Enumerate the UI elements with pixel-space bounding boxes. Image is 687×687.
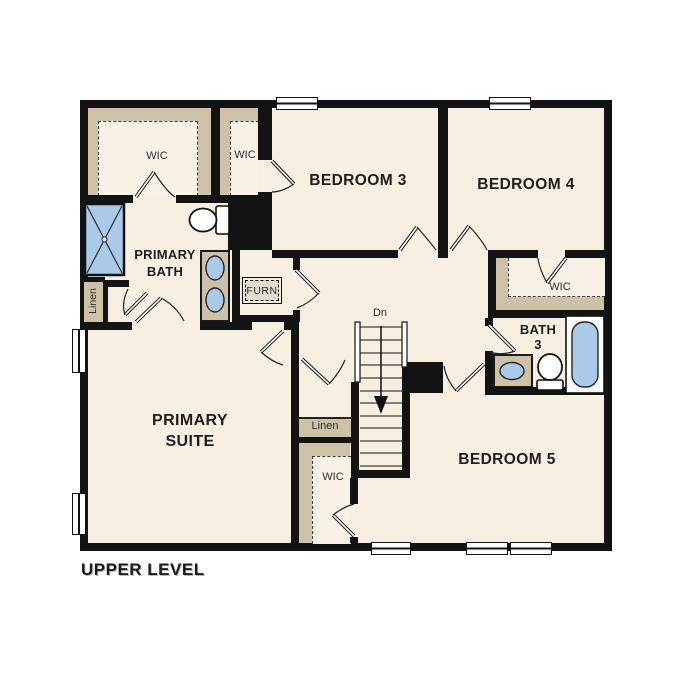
- bedroom4-wic-label: WIC: [549, 281, 570, 293]
- primary-bath-label-line1: PRIMARY: [134, 247, 196, 262]
- hall-linen-label: Linen: [312, 420, 339, 432]
- wall-wic1-bottom-left: [84, 195, 133, 203]
- stairs-dn-label: Dn: [373, 307, 387, 319]
- window-bottom-3: [510, 542, 552, 555]
- wall-furn-bottom: [232, 315, 300, 322]
- bath3-vanity: [493, 354, 533, 388]
- wall-chase-bath: [228, 203, 272, 250]
- primary-suite-label-line1: PRIMARY: [152, 412, 228, 430]
- window-left-1: [72, 329, 86, 373]
- wall-wic5-right-lower: [350, 537, 358, 543]
- window-top-2: [489, 97, 531, 110]
- bedroom5-label: BEDROOM 5: [458, 451, 555, 469]
- bedroom5-wic-floor: [312, 456, 351, 544]
- primary-wic-label: WIC: [146, 150, 167, 162]
- window-left-2: [72, 493, 86, 535]
- bath3-label-line1: BATH: [520, 322, 556, 337]
- bedroom5-wic-label: WIC: [322, 471, 343, 483]
- wall-stairs-bottom: [351, 470, 410, 478]
- wall-bath3-left-stub: [485, 318, 493, 326]
- wall-wic2-right-upper: [258, 108, 272, 160]
- wall-stairs-left: [351, 382, 359, 478]
- wall-wic5-right-upper: [350, 478, 358, 504]
- wall-furn-left: [232, 250, 240, 318]
- furnace-label: FURN: [246, 285, 277, 297]
- window-bottom-1: [371, 542, 411, 555]
- bedroom3-wic-label: WIC: [234, 149, 255, 161]
- wall-bedroom3-4-divider: [438, 108, 448, 258]
- primary-bath-vanity: [200, 250, 230, 322]
- wall-wic-divider: [211, 108, 220, 203]
- wall-hall-top: [272, 250, 398, 258]
- wall-wic1-bottom-right: [176, 195, 258, 203]
- bath3-label-line2: 3: [534, 337, 542, 352]
- wall-bedroom4-bottom-right: [565, 250, 604, 258]
- window-top-1: [276, 97, 318, 110]
- primary-suite-label-line2: SUITE: [165, 433, 214, 451]
- floor-plan-page: FURN: [0, 0, 687, 687]
- wall-suite-top-mid: [200, 322, 252, 330]
- furnace-box-inner: FURN: [245, 280, 279, 301]
- wall-linen-hall-bottom: [299, 437, 351, 443]
- bedroom4-label: BEDROOM 4: [477, 176, 574, 194]
- furnace-box: FURN: [242, 277, 282, 304]
- wall-suite-right: [291, 322, 299, 543]
- wall-suite-top-left: [84, 322, 132, 330]
- wall-linen-primary-right: [103, 280, 108, 322]
- window-bottom-2: [466, 542, 508, 555]
- wall-wic4-bottom: [488, 310, 604, 318]
- primary-bath-label-line2: BATH: [147, 264, 183, 279]
- wall-linen-primary-top: [84, 277, 105, 282]
- wall-wic4-left: [488, 250, 496, 318]
- plan-title: UPPER LEVEL: [81, 560, 205, 580]
- wall-chase-stairs: [405, 362, 443, 393]
- wall-furn-right-bottom: [293, 310, 300, 322]
- bedroom3-label: BEDROOM 3: [309, 172, 406, 190]
- wall-bath3-bottom: [485, 387, 604, 395]
- wall-stairs-right: [402, 367, 410, 478]
- primary-linen-label: Linen: [87, 288, 99, 314]
- wall-furn-right-top: [293, 250, 300, 270]
